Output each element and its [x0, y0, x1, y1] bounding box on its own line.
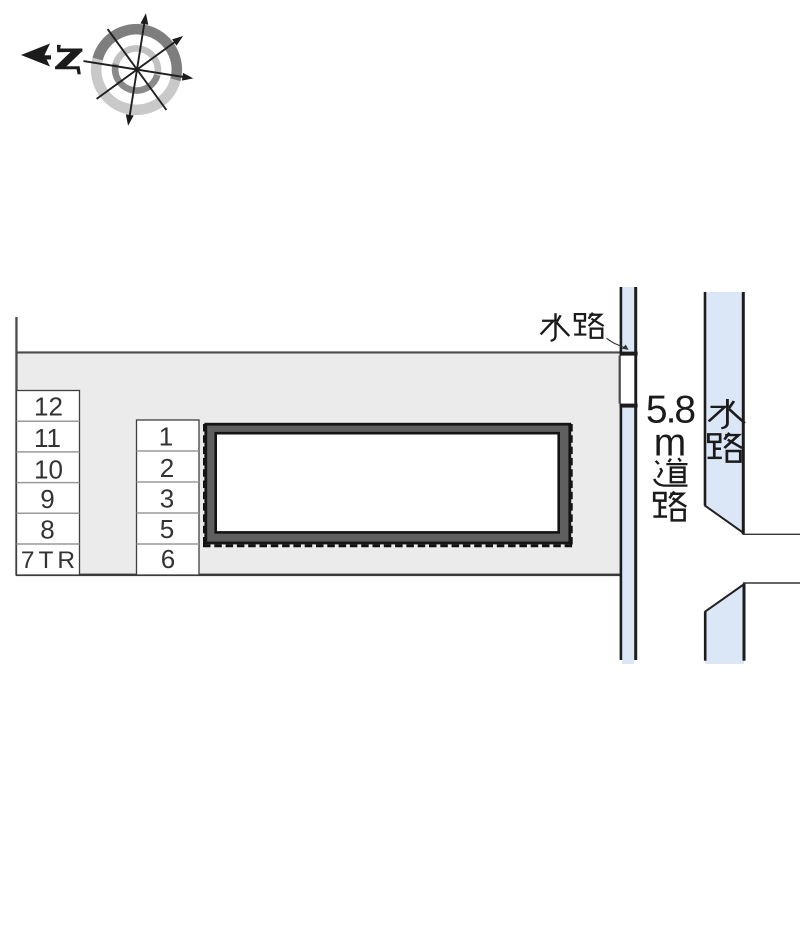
svg-text:11: 11 [34, 423, 61, 453]
svg-text:3: 3 [160, 484, 174, 514]
svg-text:7TR: 7TR [21, 547, 79, 574]
svg-text:12: 12 [34, 392, 63, 422]
svg-text:m: m [654, 422, 687, 465]
svg-text:5: 5 [160, 514, 174, 544]
svg-text:6: 6 [161, 544, 175, 574]
svg-text:1: 1 [159, 422, 173, 452]
svg-text:8: 8 [40, 515, 54, 545]
svg-text:2: 2 [160, 453, 174, 483]
svg-text:9: 9 [40, 484, 54, 514]
svg-text:10: 10 [34, 455, 63, 485]
